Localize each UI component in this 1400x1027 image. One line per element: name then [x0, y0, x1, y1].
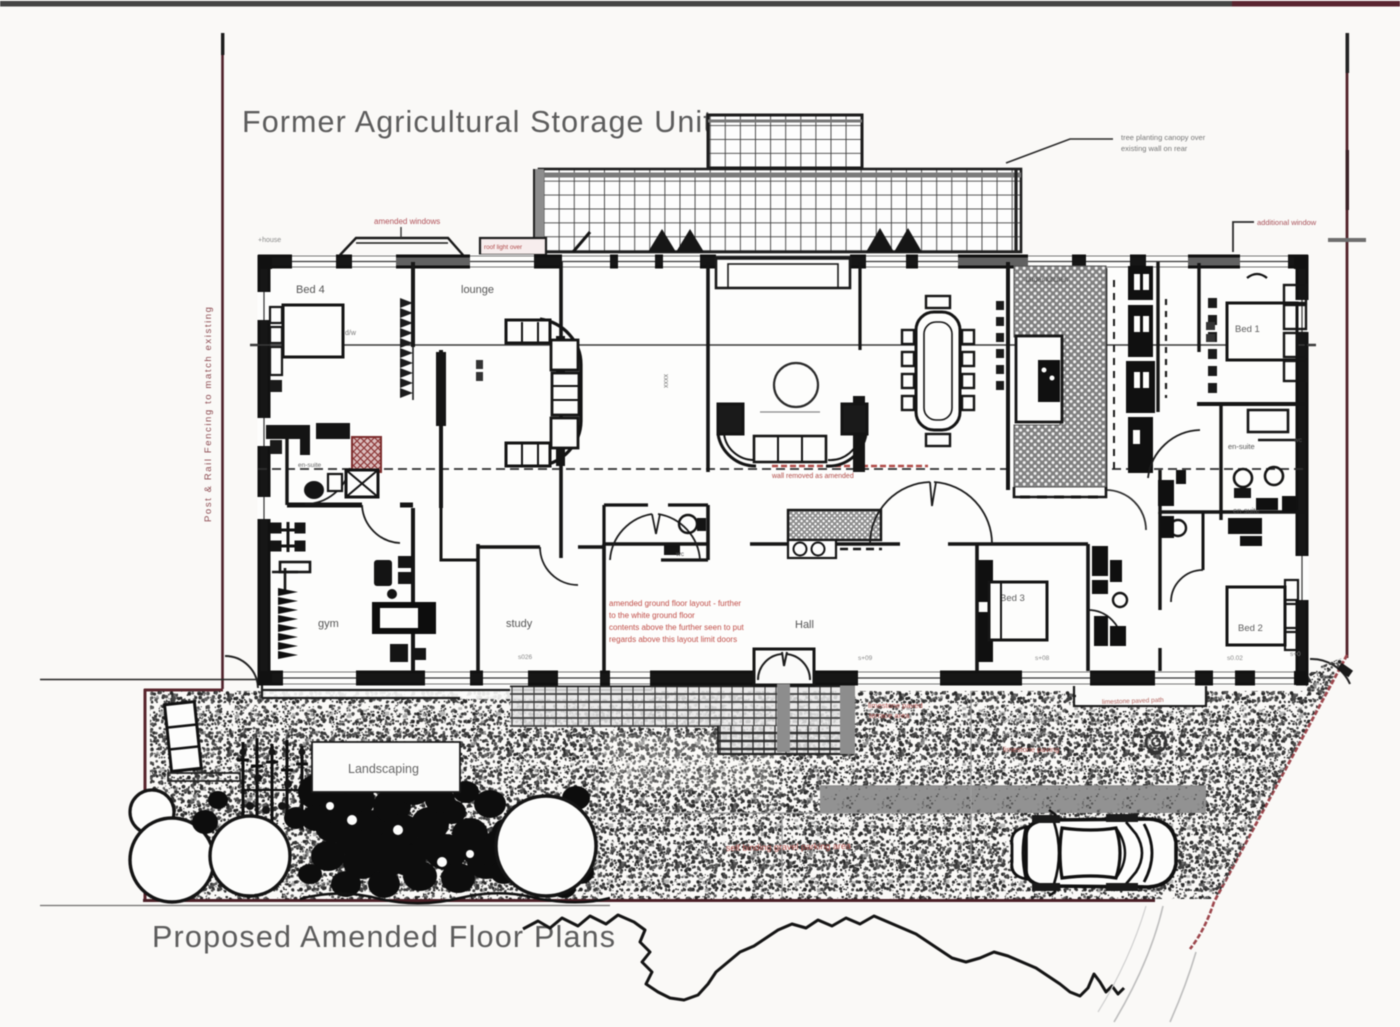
svg-text:terrace area: terrace area	[869, 711, 910, 720]
svg-text:amended windows: amended windows	[374, 217, 440, 226]
svg-text:larder kitchen: larder kitchen	[1026, 277, 1068, 284]
svg-text:en-suite: en-suite	[1233, 506, 1260, 515]
svg-text:s+0: s+0	[1290, 651, 1301, 658]
svg-text:gym: gym	[318, 618, 339, 630]
svg-text:+house: +house	[258, 237, 281, 244]
svg-text:amended ground floor layout -: amended ground floor layout - further	[609, 599, 741, 608]
svg-text:study: study	[506, 618, 533, 630]
svg-text:s+08: s+08	[1035, 655, 1050, 662]
svg-text:limestone paved: limestone paved	[868, 701, 923, 710]
svg-text:s+09: s+09	[858, 655, 873, 662]
svg-text:low level planting: low level planting	[1002, 715, 1059, 724]
svg-text:Landscaping: Landscaping	[348, 762, 419, 776]
svg-text:lounge: lounge	[461, 284, 494, 296]
svg-text:Bed 4: Bed 4	[296, 284, 325, 296]
svg-text:existing wall on rear: existing wall on rear	[1121, 144, 1188, 153]
svg-text:s0.02: s0.02	[1227, 655, 1243, 662]
svg-text:wall removed as amended: wall removed as amended	[771, 473, 854, 480]
svg-text:to the white ground floor: to the white ground floor	[609, 611, 695, 620]
svg-text:xxxx: xxxx	[663, 374, 670, 389]
svg-text:Hall: Hall	[795, 619, 814, 631]
svg-text:Bed 2: Bed 2	[1238, 623, 1263, 634]
svg-text:Bed 1: Bed 1	[1235, 324, 1260, 335]
svg-text:s026: s026	[518, 654, 532, 661]
svg-text:limestone paving: limestone paving	[1003, 745, 1059, 754]
svg-text:d/w: d/w	[345, 330, 357, 337]
svg-text:en-suite: en-suite	[1228, 442, 1255, 451]
svg-text:tree planting canopy over: tree planting canopy over	[1121, 133, 1206, 142]
svg-text:regards above this layout limi: regards above this layout limit doors	[609, 635, 737, 644]
svg-text:contents above the further see: contents above the further seen to put	[609, 623, 745, 632]
svg-text:new lawn area: new lawn area	[1002, 729, 1051, 738]
svg-text:wc: wc	[1293, 437, 1303, 444]
svg-text:additional window: additional window	[1257, 218, 1317, 227]
svg-text:en-suite: en-suite	[298, 462, 322, 469]
svg-text:roof light over: roof light over	[484, 244, 522, 251]
svg-text:Bed 3: Bed 3	[1000, 593, 1025, 604]
svg-text:Post & Rail Fencing to match e: Post & Rail Fencing to match existing	[203, 305, 214, 522]
svg-text:wc: wc	[675, 551, 685, 558]
svg-text:Former Agricultural Storage Un: Former Agricultural Storage Unit	[242, 105, 713, 139]
